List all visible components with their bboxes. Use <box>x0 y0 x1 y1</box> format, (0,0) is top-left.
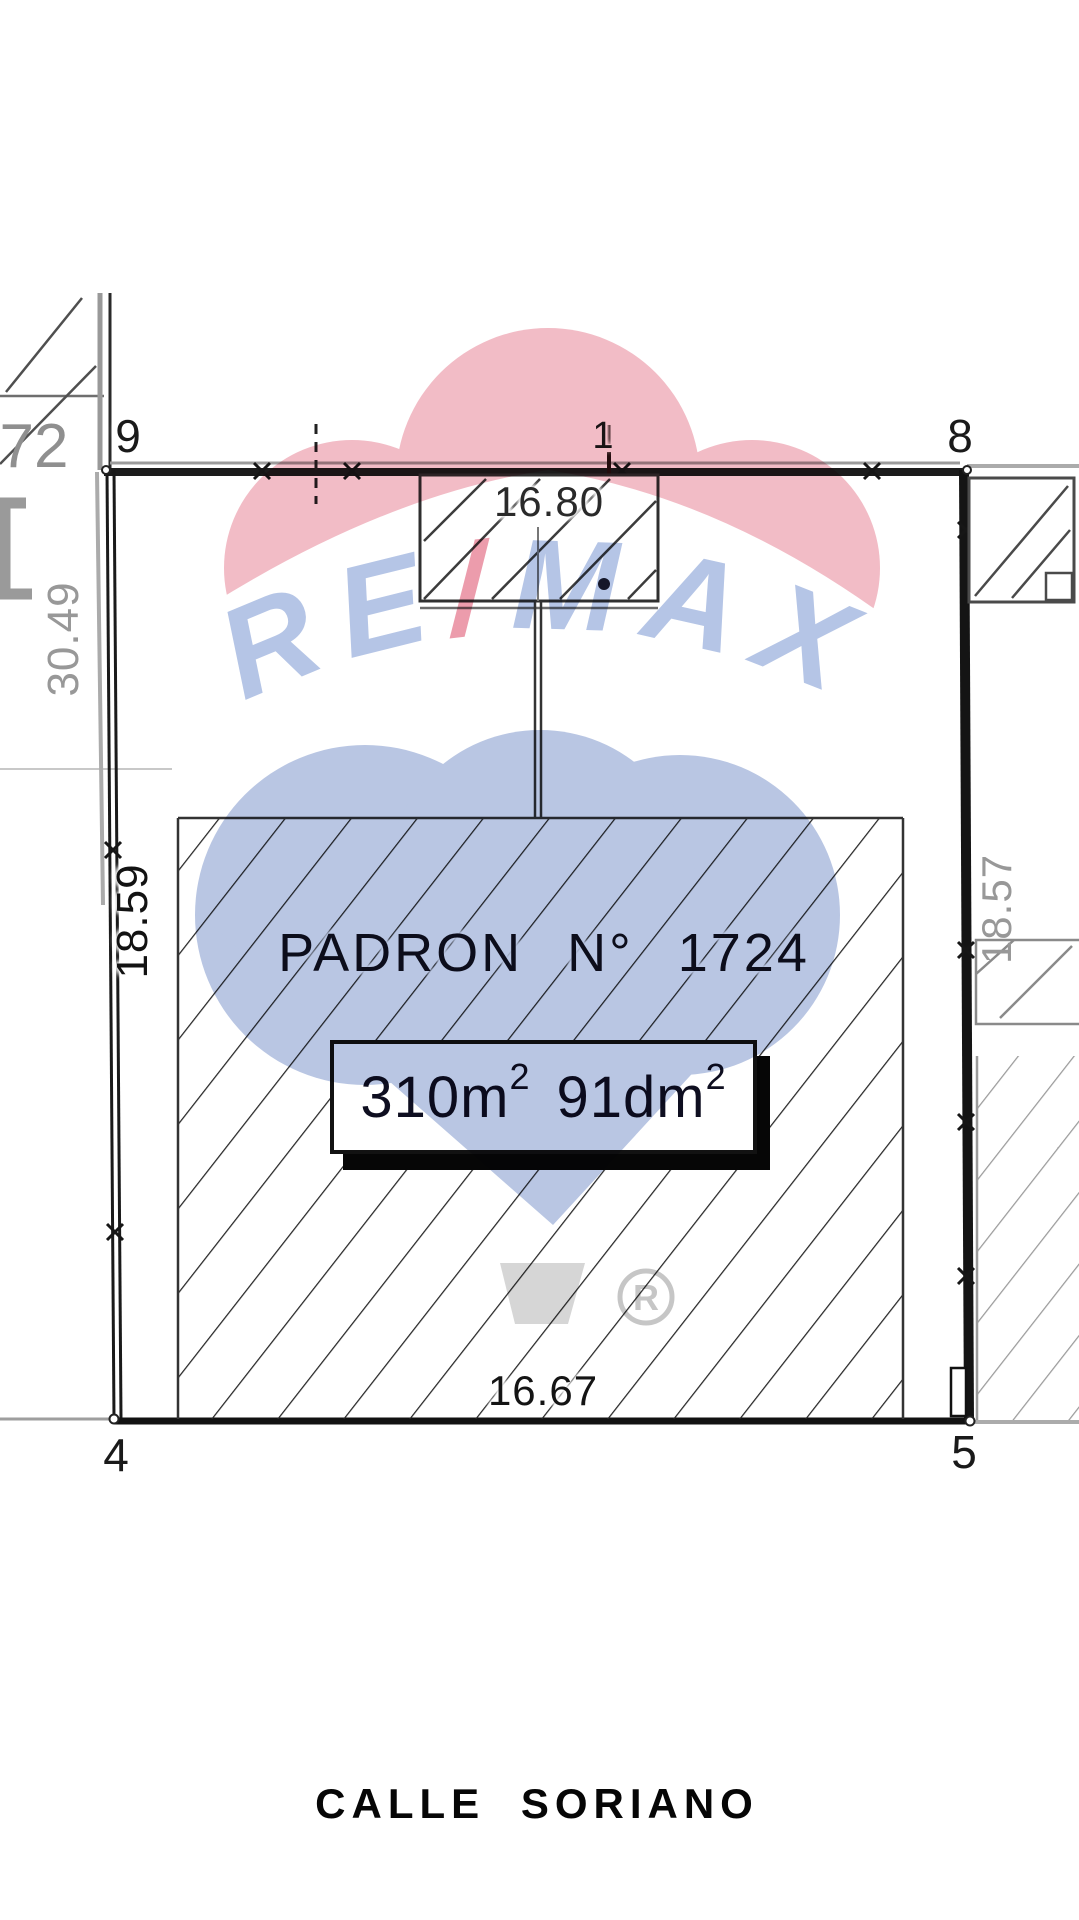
parcel-title: PADRON N° 1724 <box>278 926 810 980</box>
parcel-area-value: 310m291dm2 <box>360 1064 726 1131</box>
corner-point-1: 1 <box>592 417 613 455</box>
neighbor-padron-label: 72 <box>0 416 68 478</box>
dimension-left: 18.59 <box>111 863 155 978</box>
neighbor-structure-top-right <box>969 478 1074 602</box>
survey-plan-page: 72 9 1 8 4 5 16.80 30.49 18.59 18.57 16.… <box>0 0 1079 1920</box>
dimension-bottom: 16.67 <box>488 1370 598 1412</box>
parcel-area-box: 310m291dm2 <box>330 1040 757 1154</box>
corner-point-9: 9 <box>115 413 141 459</box>
corner-point-8: 8 <box>947 413 973 459</box>
corner-point-5: 5 <box>951 1429 977 1475</box>
dimension-left-upper-neighbor: 30.49 <box>42 581 86 696</box>
dimension-right-neighbor: 18.57 <box>976 854 1018 964</box>
street-name: CALLE SORIANO <box>315 1783 759 1825</box>
neighbor-hatch-bottom-right <box>977 1056 1079 1420</box>
corner-point-4: 4 <box>103 1432 129 1478</box>
dimension-top: 16.80 <box>494 481 604 523</box>
